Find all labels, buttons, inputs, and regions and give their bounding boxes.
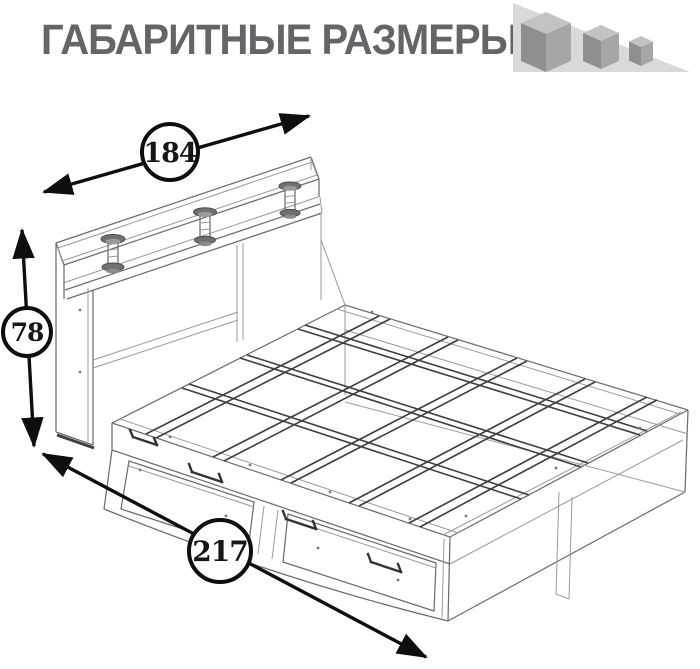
bed-dimension-drawing: 184 78 217 bbox=[0, 0, 700, 669]
three-cubes-logo bbox=[513, 3, 690, 72]
spool-post-2 bbox=[194, 208, 217, 247]
dimension-height: 78 bbox=[3, 230, 51, 446]
cube-large-icon bbox=[521, 12, 571, 72]
drawer-1-handle-icon bbox=[189, 464, 222, 482]
cube-medium-icon bbox=[583, 25, 619, 69]
spool-post-3 bbox=[279, 182, 301, 219]
drawer-divider bbox=[258, 506, 278, 559]
dimension-height-value: 78 bbox=[11, 318, 44, 347]
bed-wireframe bbox=[56, 157, 688, 621]
headboard bbox=[56, 157, 345, 448]
cube-small-icon bbox=[629, 36, 653, 66]
dimension-length-value: 217 bbox=[192, 535, 247, 568]
dimension-diagram-page: ГАБАРИТНЫЕ РАЗМЕРЫ bbox=[0, 0, 700, 669]
drawer-2-handle-icon bbox=[368, 554, 401, 572]
dimension-width-value: 184 bbox=[143, 138, 197, 169]
rail-handle-icon bbox=[130, 430, 157, 445]
drawer-2 bbox=[283, 514, 436, 611]
drawer-handles bbox=[130, 430, 401, 572]
spool-post-1 bbox=[101, 235, 125, 274]
dimension-width: 184 bbox=[44, 116, 309, 192]
